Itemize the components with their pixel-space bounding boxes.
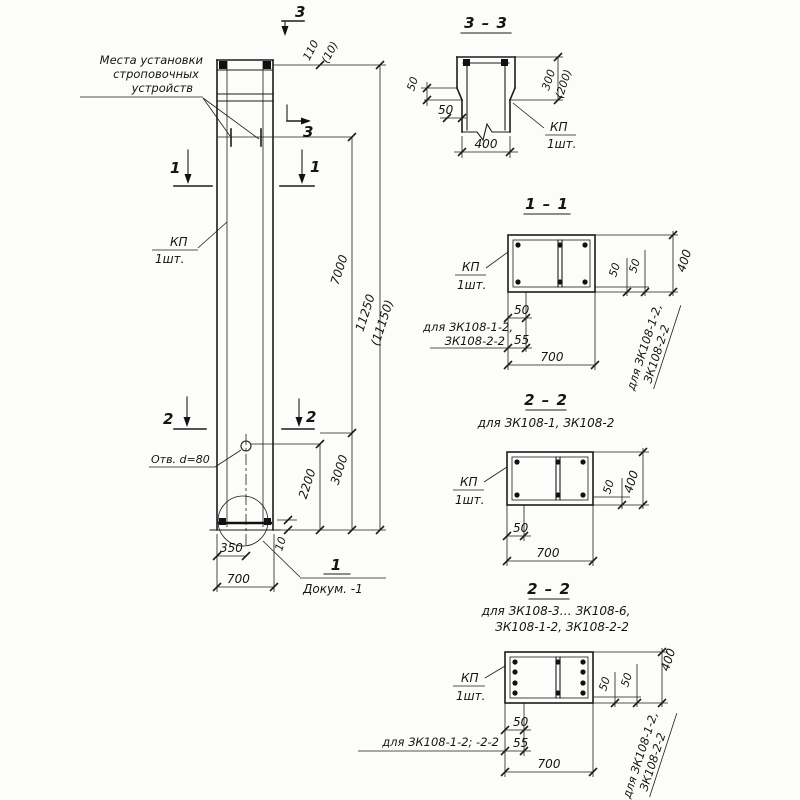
dim-55-s22b: 55 [513, 736, 528, 750]
strop-note-line3: устройств [131, 81, 194, 95]
dim-50-s11: 50 [514, 303, 530, 317]
dim-7000: 7000 [328, 253, 351, 287]
drawing-canvas: Места установки строповочных устройств К… [0, 0, 800, 800]
mark-1-left: 1 [170, 159, 180, 177]
detail-number: 1 [331, 556, 341, 574]
dim-400-s11: 400 [674, 247, 695, 273]
kp-label-s22a: КП [460, 475, 478, 489]
strop-note: Места установки строповочных устройств [80, 53, 259, 139]
section-1-1: 1 – 1 КП 1шт. 50 55 для ЗК108-1-2, ЗК108… [422, 195, 694, 398]
kp-qty: 1шт. [155, 252, 184, 266]
kp-label-s11: КП [462, 260, 480, 274]
section-2-2b-subtitle1: для ЗК108-3… ЗК108-6, [481, 604, 631, 618]
dim-2200: 2200 [296, 467, 319, 501]
dim-50-left: 50 [404, 75, 421, 92]
mark-2-left: 2 [163, 410, 173, 428]
dim-110-alt: (10) [319, 39, 341, 65]
detail-ref: Докум. -1 [302, 582, 363, 596]
dim-50-r-s22a: 50 [600, 478, 617, 495]
section-3-3-title: 3 – 3 [464, 14, 508, 32]
dim-50-r2-s22b: 50 [618, 671, 635, 688]
dim-700-s11: 700 [541, 350, 564, 364]
section-2-2a-title: 2 – 2 [524, 391, 568, 409]
s22b-note-left: для ЗК108-1-2; -2-2 [381, 735, 499, 749]
kp-qty-s22a: 1шт. [455, 493, 484, 507]
strop-note-line1: Места установки [100, 53, 204, 67]
kp-label-s22b: КП [461, 671, 479, 685]
kp-label-main: КП 1шт. [152, 222, 227, 266]
section-2-2b-title: 2 – 2 [527, 580, 571, 598]
dim-700-s22a: 700 [537, 546, 560, 560]
dim-50-bot: 50 [438, 103, 454, 117]
dim-50-r2-s11: 50 [626, 257, 643, 274]
s11-note-right: для ЗК108-1-2, ЗК108-2-2 [623, 296, 681, 397]
dim-50-s22b: 50 [513, 715, 529, 729]
dim-55-s11: 55 [514, 333, 529, 347]
s11-note-left-2: ЗК108-2-2 [445, 334, 505, 348]
dim-350: 350 [220, 541, 243, 555]
dim-400-s22a: 400 [621, 468, 642, 494]
kp-qty-s22b: 1шт. [456, 689, 485, 703]
section-3-3: 3 – 3 300 (200) 50 50 [404, 14, 576, 158]
dim-400-s22b: 400 [658, 646, 679, 672]
dim-400-s33: 400 [475, 137, 498, 151]
s22b-note-right: для ЗК108-1-2, ЗК108-2-2 [619, 704, 677, 800]
section-1-1-title: 1 – 1 [525, 195, 569, 213]
section-2-2b-subtitle2: ЗК108-1-2, ЗК108-2-2 [495, 620, 629, 634]
dim-50-r1-s22b: 50 [596, 675, 613, 692]
kp-label-s33: КП [550, 120, 568, 134]
hole-label: Отв. d=80 [151, 453, 210, 466]
kp-qty-s11: 1шт. [457, 278, 486, 292]
dim-50-r1-s11: 50 [606, 261, 623, 278]
kp-qty-s33: 1шт. [547, 137, 576, 151]
mark-3-top: 3 [295, 3, 305, 21]
section-2-2-b: 2 – 2 для ЗК108-3… ЗК108-6, ЗК108-1-2, З… [358, 580, 679, 800]
s11-note-left-1: для ЗК108-1-2, [422, 320, 513, 334]
mark-1-right: 1 [310, 158, 320, 176]
dim-3000: 3000 [328, 453, 351, 487]
drawing-sheet: Места установки строповочных устройств К… [0, 0, 800, 800]
mark-3-side: 3 [303, 123, 313, 141]
dim-700-s22b: 700 [538, 757, 561, 771]
mark-2-right: 2 [306, 408, 316, 426]
dim-700-main: 700 [227, 572, 250, 586]
dim-50-s22a: 50 [513, 521, 529, 535]
dim-10: 10 [272, 535, 289, 552]
section-2-2-a: 2 – 2 для ЗК108-1, ЗК108-2 КП 1шт. 50 70… [453, 391, 649, 566]
section-2-2a-subtitle: для ЗК108-1, ЗК108-2 [477, 416, 615, 430]
kp-label: КП [170, 235, 188, 249]
strop-note-line2: строповочных [113, 67, 199, 81]
